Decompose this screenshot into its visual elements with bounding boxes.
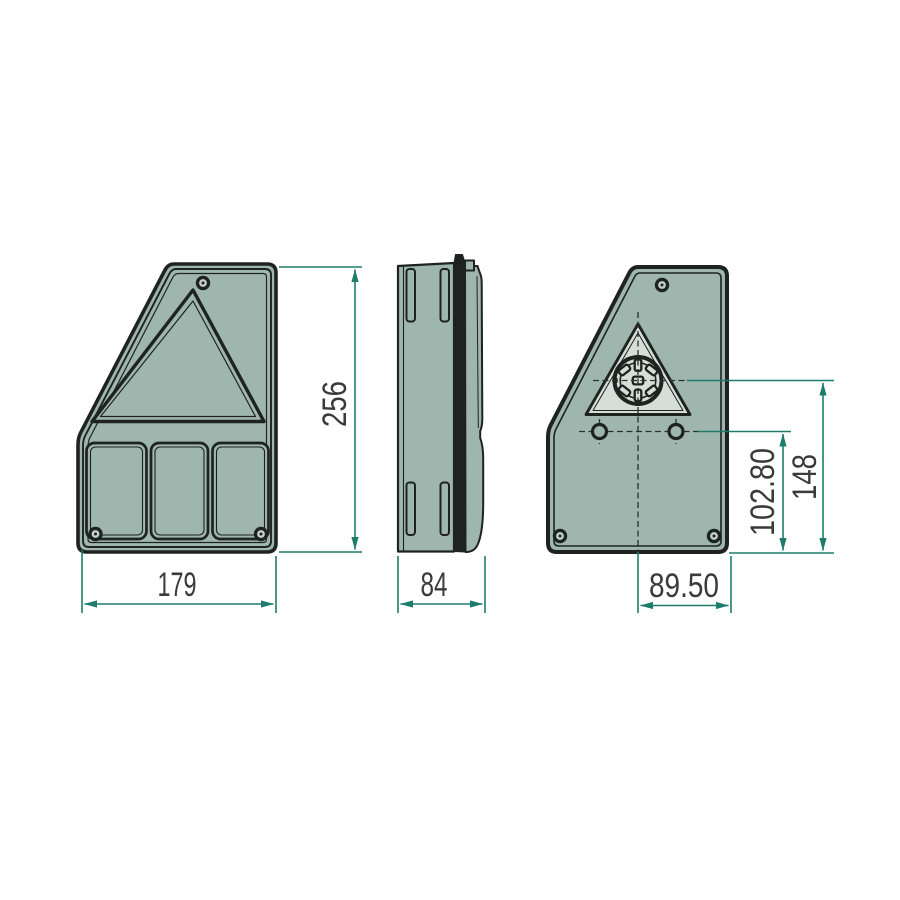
mounting-slot xyxy=(441,483,450,536)
side-seam-band xyxy=(454,255,466,553)
screw-icon xyxy=(553,529,567,543)
mounting-slot xyxy=(407,269,416,322)
side-top-step xyxy=(465,261,474,271)
dimension-label-holes-to-bottom: 102.80 xyxy=(744,448,782,536)
lens-compartment-left xyxy=(87,443,147,539)
mounting-slot xyxy=(441,269,450,322)
dimension-label-side-depth: 84 xyxy=(421,566,448,604)
screw-icon xyxy=(196,276,210,290)
screw-icon xyxy=(655,278,669,292)
front-view xyxy=(78,264,276,552)
technical-drawing: 179 256 84 89.50 102.80 148 xyxy=(0,0,900,900)
mounting-hole xyxy=(593,425,607,439)
screw-icon xyxy=(254,527,268,541)
dimension-label-connector-to-bottom: 148 xyxy=(786,454,824,500)
lens-compartment-middle xyxy=(151,443,208,539)
screw-icon xyxy=(707,529,721,543)
dimension-label-front-height: 256 xyxy=(316,381,354,427)
drawing-canvas: 179 256 84 89.50 102.80 148 xyxy=(0,0,900,900)
side-lens-profile xyxy=(465,266,483,552)
mounting-hole xyxy=(669,425,683,439)
lens-compartment-right xyxy=(213,443,269,539)
dimension-label-front-width: 179 xyxy=(158,566,197,604)
back-view xyxy=(548,267,727,552)
mounting-slot xyxy=(407,483,416,536)
dimension-label-connector-offset: 89.50 xyxy=(649,567,719,605)
screw-icon xyxy=(88,527,102,541)
side-view xyxy=(398,255,483,553)
